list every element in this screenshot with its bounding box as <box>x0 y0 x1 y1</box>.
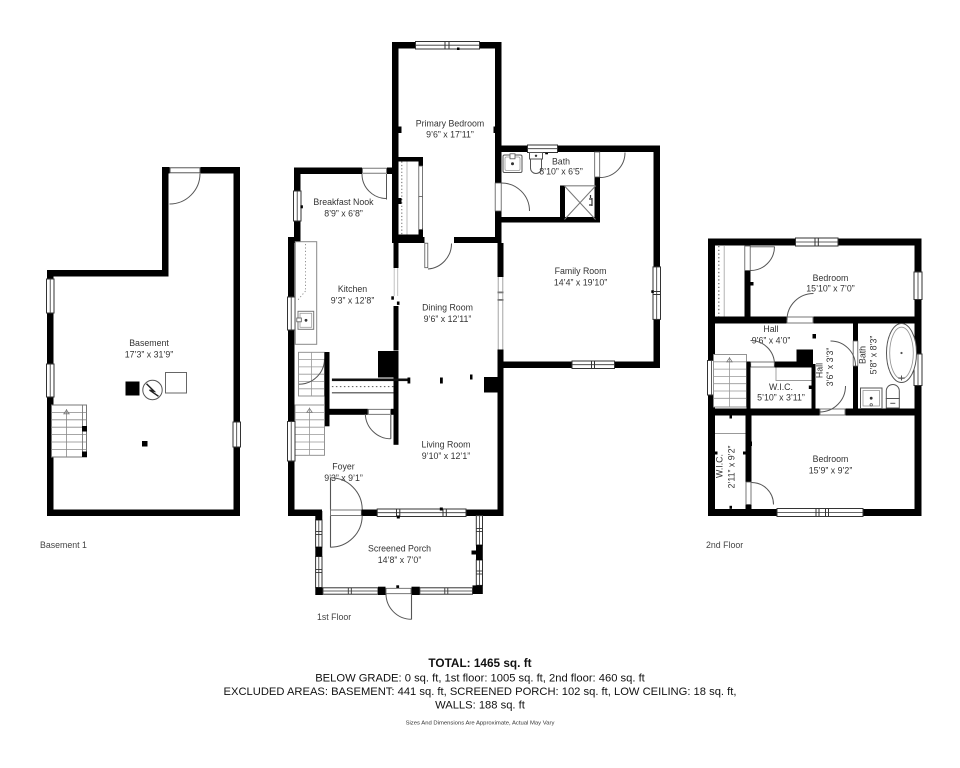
svg-text:Screened Porch: Screened Porch <box>368 544 431 554</box>
svg-text:2nd Floor: 2nd Floor <box>706 540 743 550</box>
svg-text:17’3” x 31’9”: 17’3” x 31’9” <box>125 350 173 360</box>
svg-text:WALLS: 188 sq. ft: WALLS: 188 sq. ft <box>435 699 526 711</box>
svg-text:2’11” x 9’2”: 2’11” x 9’2” <box>727 446 737 489</box>
svg-text:5’8” x 8’3”: 5’8” x 8’3” <box>869 336 879 375</box>
svg-text:Kitchen: Kitchen <box>338 284 367 294</box>
svg-text:EXCLUDED AREAS: BASEMENT: 441: EXCLUDED AREAS: BASEMENT: 441 sq. ft, SC… <box>224 686 737 698</box>
svg-text:Bath: Bath <box>858 346 868 364</box>
svg-text:5’10” x 3’11”: 5’10” x 3’11” <box>757 393 805 403</box>
svg-text:3’6” x 3’3”: 3’6” x 3’3” <box>825 348 835 387</box>
svg-text:Basement: Basement <box>129 338 169 348</box>
svg-text:Hall: Hall <box>763 324 778 334</box>
svg-text:Basement 1: Basement 1 <box>40 540 87 550</box>
svg-text:8’10” x 6’5”: 8’10” x 6’5” <box>539 166 583 176</box>
svg-text:9’6” x 4’0”: 9’6” x 4’0” <box>752 336 791 346</box>
svg-text:BELOW GRADE: 0 sq. ft, 1st flo: BELOW GRADE: 0 sq. ft, 1st floor: 1005 s… <box>315 672 645 684</box>
svg-text:15’9” x 9’2”: 15’9” x 9’2” <box>809 466 853 476</box>
svg-text:W.I.C.: W.I.C. <box>715 454 725 478</box>
svg-text:Bath: Bath <box>552 157 570 167</box>
svg-text:9’10” x 12’1”: 9’10” x 12’1” <box>422 451 470 461</box>
svg-text:TOTAL: 1465 sq. ft: TOTAL: 1465 sq. ft <box>428 656 531 670</box>
svg-text:Hall: Hall <box>815 363 825 378</box>
svg-text:9’6” x 12’11”: 9’6” x 12’11” <box>424 314 472 324</box>
svg-text:Bedroom: Bedroom <box>813 273 849 283</box>
svg-text:9’3” x 12’8”: 9’3” x 12’8” <box>331 296 375 306</box>
svg-text:1st Floor: 1st Floor <box>317 612 351 622</box>
svg-text:8’9” x 6’8”: 8’9” x 6’8” <box>324 209 363 219</box>
svg-text:14’8” x 7’0”: 14’8” x 7’0” <box>378 555 422 565</box>
svg-text:9’6” x 17’11”: 9’6” x 17’11” <box>426 130 474 140</box>
svg-text:Living Room: Living Room <box>422 440 471 450</box>
svg-text:Primary Bedroom: Primary Bedroom <box>416 119 484 129</box>
svg-text:Dining Room: Dining Room <box>422 303 473 313</box>
svg-text:Family Room: Family Room <box>555 266 607 276</box>
svg-text:Bedroom: Bedroom <box>813 454 849 464</box>
svg-text:Foyer: Foyer <box>332 462 355 472</box>
svg-text:Sizes And Dimensions Are Appro: Sizes And Dimensions Are Approximate, Ac… <box>406 720 555 726</box>
svg-text:Breakfast Nook: Breakfast Nook <box>313 197 374 207</box>
svg-text:W.I.C.: W.I.C. <box>769 382 793 392</box>
svg-text:14’4” x 19’10”: 14’4” x 19’10” <box>554 278 607 288</box>
svg-text:15’10” x 7’0”: 15’10” x 7’0” <box>806 284 854 294</box>
